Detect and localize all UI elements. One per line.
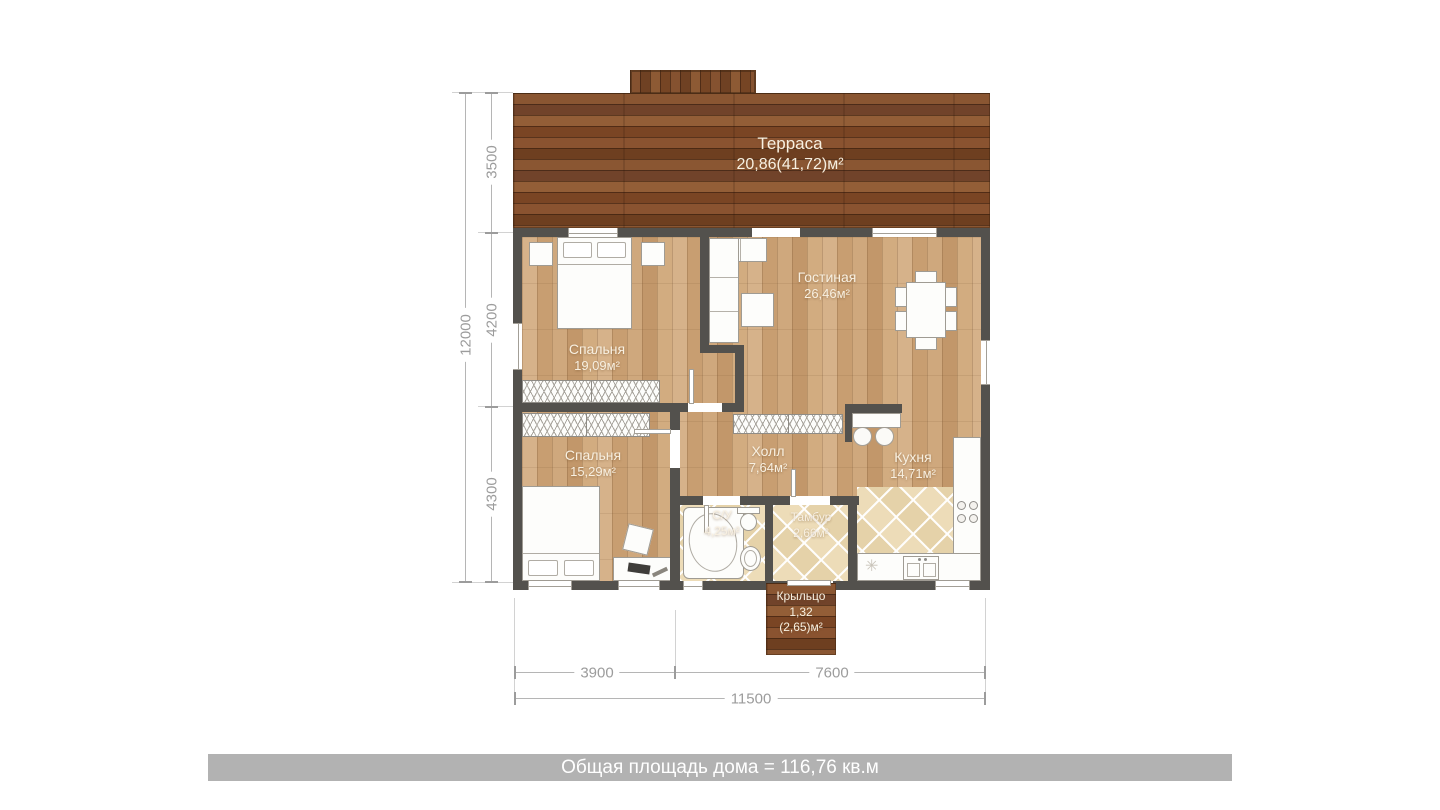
- window-living-right: [981, 340, 990, 385]
- dining-chair: [945, 287, 957, 307]
- bedroom2-name: Спальня: [536, 446, 650, 464]
- kitchen-name: Кухня: [856, 448, 970, 466]
- living-dining-set: [893, 271, 958, 351]
- door-bedroom2: [670, 430, 680, 468]
- pillow: [564, 560, 594, 576]
- bedroom1-area: 19,09м²: [540, 358, 654, 375]
- dimension-tick: [984, 666, 986, 679]
- bathroom-sink: [740, 546, 761, 571]
- kitchen-stove: [956, 500, 980, 527]
- extension-line: [985, 598, 986, 699]
- bar-stool: [875, 427, 894, 446]
- door-bathroom: [703, 496, 740, 505]
- bar-stool: [853, 427, 872, 446]
- porch-area-gross: (2,65)м²: [766, 620, 836, 636]
- wall-kitchen-stub-h: [845, 404, 902, 413]
- dimension-left-total: 12000: [458, 308, 475, 362]
- dimension-tick: [674, 666, 676, 679]
- dimension-tick: [514, 666, 516, 679]
- terrace-steps: [630, 70, 756, 94]
- kitchen-area: 14,71м²: [856, 466, 970, 483]
- sink-basin: [923, 563, 936, 577]
- dimension-left-segment-2: 4200: [484, 297, 501, 342]
- pillow: [528, 560, 558, 576]
- room-label-porch: Крыльцо 1,32 (2,65)м²: [766, 589, 836, 636]
- sofa-seam: [710, 277, 738, 278]
- sofa-seam: [710, 311, 738, 312]
- dimension-tick: [459, 581, 472, 583]
- extension-line: [675, 610, 676, 672]
- door-terrace: [752, 228, 800, 237]
- dining-chair: [915, 337, 937, 350]
- dimension-tick: [485, 92, 498, 94]
- window-kitchen-bottom: [935, 581, 970, 590]
- room-label-kitchen: Кухня 14,71м²: [856, 448, 970, 483]
- bathroom-area: 4,25м²: [692, 524, 752, 540]
- total-area-banner: Общая площадь дома = 116,76 кв.м: [208, 754, 1232, 781]
- wall-bathroom-vestibule: [765, 505, 773, 581]
- window-bedroom2-bottom-2: [618, 581, 660, 590]
- window-bedroom1-top: [568, 228, 618, 237]
- window-living-top: [872, 228, 937, 237]
- dimension-bottom-segment-2: 7600: [809, 665, 854, 682]
- desk-item: [652, 567, 668, 577]
- vestibule-name: Тамбур: [775, 510, 847, 526]
- dining-table: [906, 282, 946, 338]
- room-label-bedroom2: Спальня 15,29м²: [536, 446, 650, 481]
- stove-burner: [969, 501, 978, 510]
- door-bedroom1: [688, 403, 722, 412]
- terrace-area: 20,86(41,72)м²: [710, 155, 870, 176]
- pillow: [597, 242, 626, 258]
- stove-burner: [969, 514, 978, 523]
- dimension-tick: [485, 232, 498, 234]
- sink-faucet: [918, 558, 921, 561]
- hall-wardrobe: [733, 414, 843, 434]
- floorplan-canvas: Терраса 20,86(41,72)м²: [0, 0, 1440, 810]
- dining-chair: [945, 311, 957, 331]
- sink-basin: [744, 550, 757, 567]
- wall-bedroom1-living: [700, 237, 709, 353]
- dimension-tick: [459, 92, 472, 94]
- bathroom-name: С/У: [692, 508, 752, 524]
- porch-threshold: [787, 580, 831, 586]
- dimension-tick: [485, 406, 498, 408]
- extension-line: [514, 598, 515, 699]
- dimension-bottom-segment-1: 3900: [574, 665, 619, 682]
- room-label-terrace: Терраса 20,86(41,72)м²: [710, 133, 870, 176]
- bedroom1-bed: [557, 237, 632, 329]
- dimension-tick: [514, 692, 516, 705]
- desk-laptop: [627, 563, 650, 575]
- door-vestibule-hall: [790, 496, 830, 505]
- stove-burner: [957, 501, 966, 510]
- stove-burner: [957, 514, 966, 523]
- window-bedroom2-bottom-1: [528, 581, 572, 590]
- kitchen-sink: [903, 556, 939, 580]
- living-area: 26,46м²: [770, 286, 884, 303]
- room-terrace: Терраса 20,86(41,72)м²: [513, 93, 990, 228]
- room-label-vestibule: Тамбур 2,66м²: [775, 510, 847, 541]
- room-label-living: Гостиная 26,46м²: [770, 268, 884, 303]
- wall-bedroom1-hall: [735, 345, 744, 412]
- sofa-seam: [740, 239, 741, 261]
- dishwasher-icon: ✳: [865, 559, 878, 575]
- dimension-tick: [984, 692, 986, 705]
- hall-name: Холл: [711, 442, 825, 460]
- room-label-hall: Холл 7,64м²: [711, 442, 825, 477]
- kitchen-bar-counter: [852, 413, 901, 428]
- wall-vestibule-kitchen: [848, 505, 857, 581]
- living-name: Гостиная: [770, 268, 884, 286]
- dimension-left-segment-1: 3500: [484, 139, 501, 184]
- bedroom1-nightstand-left: [529, 242, 553, 266]
- bedroom2-wardrobe: [522, 413, 650, 437]
- dimension-bottom-total: 11500: [725, 691, 778, 708]
- bedroom2-area: 15,29м²: [536, 464, 650, 481]
- pillow: [563, 242, 592, 258]
- terrace-name: Терраса: [710, 133, 870, 155]
- blanket-edge: [523, 553, 599, 554]
- hall-area: 7,64м²: [711, 460, 825, 477]
- bedroom1-nightstand-right: [641, 242, 665, 266]
- room-porch: Крыльцо 1,32 (2,65)м²: [766, 583, 836, 655]
- door-leaf-bedroom1: [689, 369, 694, 404]
- bedroom1-wardrobe: [522, 380, 660, 403]
- bedroom2-desk: [613, 557, 671, 581]
- bedroom2-bed: [522, 486, 600, 581]
- porch-area: 1,32: [766, 605, 836, 621]
- dimension-tick: [485, 581, 498, 583]
- wall-hall-bathroom: [670, 496, 859, 505]
- total-area-text: Общая площадь дома = 116,76 кв.м: [561, 757, 879, 778]
- living-sofa-left: [709, 238, 739, 343]
- room-label-bedroom1: Спальня 19,09м²: [540, 340, 654, 375]
- sink-basin: [907, 563, 920, 577]
- vestibule-area: 2,66м²: [775, 526, 847, 542]
- house-outline: ✳: [513, 228, 990, 590]
- sink-faucet: [924, 558, 927, 561]
- door-leaf-bedroom2: [634, 429, 671, 434]
- porch-name: Крыльцо: [766, 589, 836, 605]
- bedroom1-name: Спальня: [540, 340, 654, 358]
- window-bedroom1-left: [513, 323, 522, 370]
- wall-kitchen-stub-v: [845, 404, 852, 442]
- dimension-left-segment-3: 4300: [484, 471, 501, 516]
- window-bathroom-bottom: [683, 581, 703, 590]
- blanket-edge: [558, 264, 631, 265]
- room-label-bathroom: С/У 4,25м²: [692, 508, 752, 539]
